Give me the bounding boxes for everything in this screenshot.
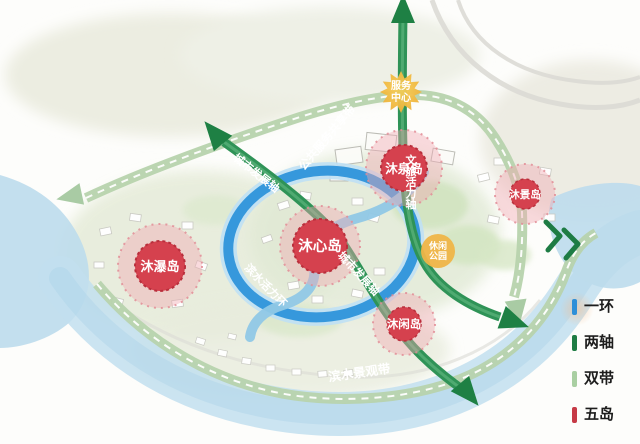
island-label: 沐景岛 (509, 188, 541, 201)
legend-label: 五岛 (584, 404, 614, 426)
leisure-park-label-line1: 休闲 (428, 240, 447, 251)
legend-item-ring: 一环 (572, 296, 614, 318)
legend-swatch-belts (572, 371, 577, 387)
legend-label: 两轴 (584, 332, 614, 354)
legend-label: 双带 (584, 368, 614, 390)
island-muxin: 沐心岛 (280, 206, 360, 286)
axis-north-label: 文旅活力轴 (404, 153, 417, 210)
axis-arrow-up-icon (391, 0, 415, 23)
map-canvas: 沐心岛 沐泉岛 沐景岛 沐瀑岛 沐闲岛 服务 中心 休闲 公园 公共服务共享带 (0, 0, 640, 444)
service-center-label-line2: 中心 (391, 91, 411, 104)
legend-item-belts: 双带 (572, 368, 614, 390)
legend-swatch-ring (572, 299, 577, 315)
island-mujing: 沐景岛 (495, 164, 555, 224)
island-muxian: 沐闲岛 (373, 293, 435, 355)
island-label: 沐闲岛 (387, 317, 422, 331)
island-mupu: 沐瀑岛 (118, 224, 202, 308)
legend-swatch-islands (572, 407, 577, 423)
island-label: 沐心岛 (298, 237, 342, 255)
belt-arrow-left-icon (54, 183, 84, 210)
legend-label: 一环 (584, 296, 614, 318)
island-label: 沐瀑岛 (140, 259, 179, 274)
leisure-park-label-line2: 公园 (429, 251, 447, 261)
legend-item-axes: 两轴 (572, 332, 614, 354)
leisure-park-badge: 休闲 公园 (421, 234, 455, 268)
legend: 一环 两轴 双带 五岛 (572, 296, 614, 426)
legend-swatch-axes (572, 335, 577, 351)
planning-map: 沐心岛 沐泉岛 沐景岛 沐瀑岛 沐闲岛 服务 中心 休闲 公园 公共服务共享带 (0, 0, 640, 444)
service-center-label-line1: 服务 (391, 79, 412, 92)
legend-item-islands: 五岛 (572, 404, 614, 426)
